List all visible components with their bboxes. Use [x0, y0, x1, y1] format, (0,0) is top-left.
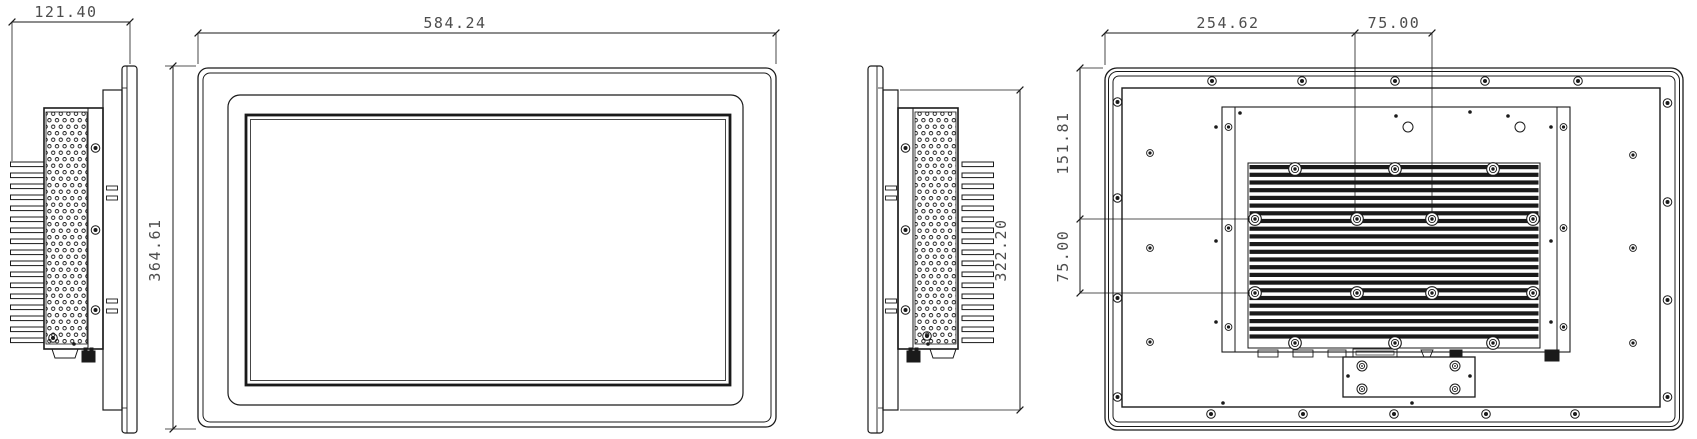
front-bezel-inner — [228, 95, 743, 405]
dim-label-rear-top-left: 254.62 — [1196, 14, 1259, 32]
screen — [246, 115, 730, 385]
rear-view — [1105, 68, 1683, 430]
dim-label-front-width: 584.24 — [423, 14, 486, 32]
dim-label-rear-left-bottom: 75.00 — [1054, 230, 1072, 283]
vent-holes-area-right — [915, 112, 956, 344]
hanging-hole — [1403, 122, 1413, 132]
dimension-lines — [9, 19, 1436, 433]
hanging-hole — [1515, 122, 1525, 132]
dim-label-rear-top-right: 75.00 — [1368, 14, 1421, 32]
front-view — [198, 68, 776, 427]
front-panel-slab-right — [868, 66, 883, 433]
power-jack — [82, 351, 95, 362]
mount-bracket — [103, 90, 122, 410]
drawing-canvas: 121.40 584.24 364.61 322.20 254.62 75.00… — [0, 0, 1697, 439]
power-jack-right — [907, 351, 920, 362]
serial-connector-right — [930, 349, 956, 358]
side-view-right — [868, 66, 994, 433]
panel-pc-technical-drawing: 121.40 584.24 364.61 322.20 254.62 75.00… — [0, 0, 1697, 439]
serial-connector — [52, 349, 78, 358]
dim-label-front-height: 364.61 — [146, 218, 164, 281]
mount-bracket-right — [883, 90, 898, 410]
side-left-fins — [11, 162, 45, 343]
side-right-fins — [962, 162, 994, 343]
vent-holes-area — [46, 112, 87, 344]
dim-label-side-left-width: 121.40 — [34, 3, 97, 21]
dim-label-rear-left-top: 151.81 — [1054, 111, 1072, 174]
side-view-left — [11, 66, 138, 433]
front-panel-slab — [122, 66, 137, 433]
front-outer-frame — [198, 68, 776, 427]
dimension-labels: 121.40 584.24 364.61 322.20 254.62 75.00… — [34, 3, 1420, 282]
dim-label-side-right-height: 322.20 — [992, 218, 1010, 281]
power-connector — [1545, 350, 1559, 361]
rear-heatsink-fins — [1250, 166, 1538, 339]
